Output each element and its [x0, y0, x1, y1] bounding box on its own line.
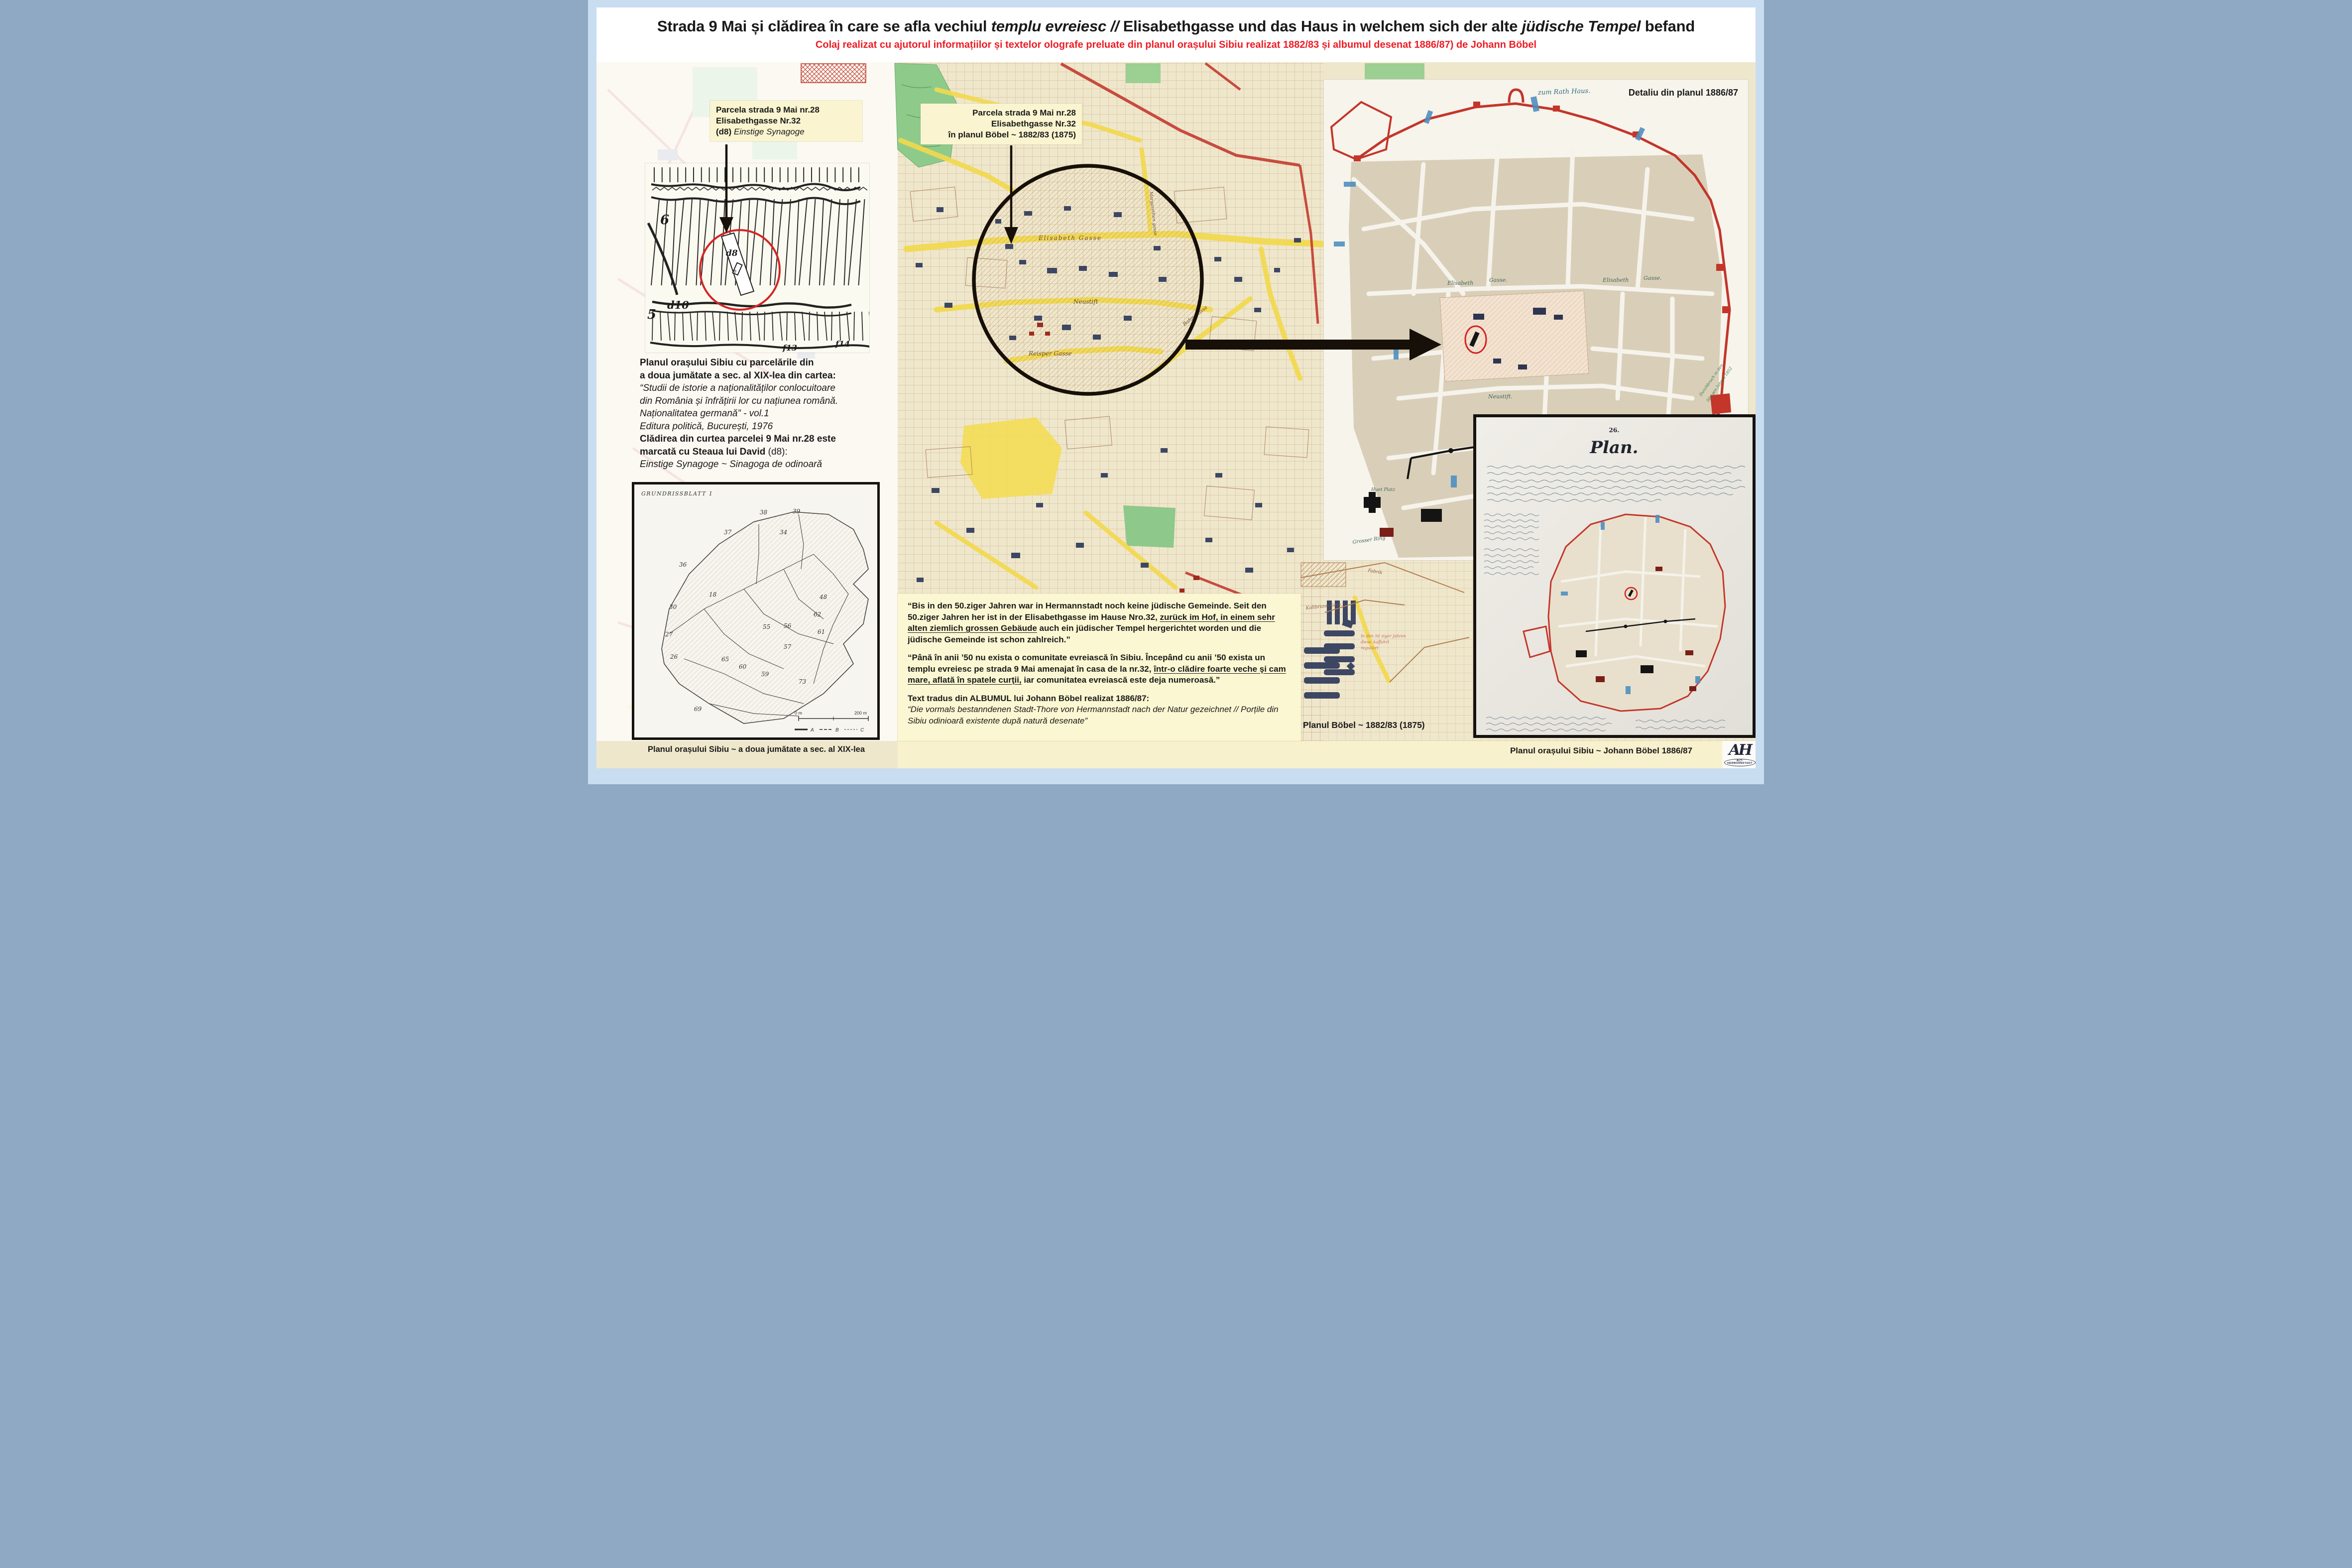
street-label-elisabeth: Elisabeth Gasse	[1038, 235, 1102, 241]
svg-text:60: 60	[739, 663, 747, 670]
quote-romanian: “Până în anii ’50 nu exista o comunitate…	[908, 652, 1291, 686]
quote-german: “Bis in den 50.ziger Jahren war in Herma…	[908, 601, 1291, 645]
ah-logo-text: ALT-HERMANNSTADT	[1724, 759, 1756, 766]
ah-monogram: AH	[1724, 743, 1755, 758]
svg-text:Gasse.: Gasse.	[1489, 277, 1508, 283]
svg-text:65: 65	[721, 656, 729, 663]
inset-cadastral-sketch: ✡ d8 6 d10 5 f13 f14	[645, 163, 869, 353]
svg-text:48: 48	[819, 594, 827, 601]
caption-detail-1886: Detaliu din planul 1886/87	[1579, 88, 1738, 98]
miniature-plan	[1524, 514, 1725, 711]
svg-text:18: 18	[709, 591, 717, 598]
footer-notes	[1486, 717, 1725, 731]
margin-notes	[1484, 514, 1539, 575]
panel-label-elisabeth-1: Elisabeth	[1447, 280, 1473, 286]
label-f14: f14	[835, 339, 850, 349]
svg-text:26: 26	[670, 653, 678, 660]
caption-bottom-right: Planul orașului Sibiu ~ Johann Böbel 188…	[1484, 746, 1718, 756]
note-red-1: In den 50 ziger Jahren	[1360, 634, 1406, 638]
callout-parcel-left: Parcela strada 9 Mai nr.28 Elisabethgass…	[710, 101, 862, 141]
note-red-2: diese Auffahrt	[1361, 640, 1390, 644]
label-d8: d8	[726, 248, 738, 258]
svg-text:36: 36	[679, 561, 687, 568]
street-label-neustift: Neustift	[1073, 298, 1098, 305]
red-hatched-area	[801, 64, 866, 83]
svg-text:61: 61	[818, 628, 825, 635]
grundriss-title: GRUNDRISSBLATT 1	[641, 490, 713, 497]
svg-text:57: 57	[784, 643, 792, 650]
svg-text:27: 27	[665, 631, 673, 638]
svg-text:30: 30	[669, 603, 677, 610]
svg-text:Gasse.: Gasse.	[1644, 275, 1662, 281]
panel-label-huet-platz: Huet Platz	[1371, 487, 1395, 492]
caption-bottom-left: Planul orașului Sibiu ~ a doua jumătate …	[632, 745, 881, 754]
panel-label-neustift: Neustift.	[1488, 393, 1513, 400]
scale-bar: 0 m 200 m A B C	[795, 711, 868, 733]
quote-box: “Bis in den 50.ziger Jahren war in Herma…	[898, 594, 1301, 741]
panel-label-elisabeth-2: Elisabeth	[1602, 277, 1629, 283]
svg-text:38: 38	[760, 509, 768, 516]
ah-logo: AH ALT-HERMANNSTADT	[1724, 743, 1755, 766]
plan-number: 26.	[1609, 427, 1620, 434]
handwriting-lines	[1487, 466, 1745, 501]
svg-text:55: 55	[763, 623, 770, 630]
inset-plan-document: 26. Plan.	[1473, 414, 1756, 738]
svg-text:200 m: 200 m	[854, 711, 867, 716]
inset-grundrissblatt: GRUNDRISSBLATT 1 38 39 37 36 34	[632, 482, 880, 740]
svg-text:56: 56	[784, 622, 792, 629]
callout-parcel-center: Parcela strada 9 Mai nr.28 Elisabethgass…	[921, 104, 1082, 144]
svg-text:39: 39	[793, 508, 801, 515]
svg-text:C: C	[860, 727, 864, 733]
plan-title: Plan.	[1589, 438, 1638, 458]
svg-text:69: 69	[694, 706, 702, 713]
svg-text:73: 73	[799, 678, 807, 685]
svg-text:37: 37	[724, 529, 732, 536]
svg-text:B: B	[835, 727, 839, 733]
svg-text:0 m: 0 m	[795, 711, 802, 716]
page-title: Strada 9 Mai și clădirea în care se afla…	[596, 17, 1756, 35]
caption-boebel-plan: Planul Böbel ~ 1882/83 (1875)	[1303, 720, 1462, 730]
label-f13: f13	[782, 343, 797, 353]
title-band: Strada 9 Mai și clădirea în care se afla…	[596, 7, 1756, 62]
poster: Elisabeth Gasse Neustift Reisper Gasse B…	[588, 0, 1764, 784]
star-of-david-icon: ✡	[733, 269, 737, 274]
label-6: 6	[660, 213, 669, 228]
svg-text:A: A	[810, 727, 814, 733]
page-subtitle: Colaj realizat cu ajutorul informațiilor…	[596, 39, 1756, 51]
label-5: 5	[647, 307, 656, 322]
note-red-3: reguliert	[1361, 646, 1379, 650]
svg-text:62: 62	[814, 611, 821, 618]
left-description: Planul orașului Sibiu cu parcelările din…	[640, 357, 899, 471]
svg-text:59: 59	[761, 671, 769, 678]
panel-label-grosser-ring: Grosser Ring	[1352, 535, 1386, 545]
svg-text:34: 34	[780, 529, 787, 536]
street-label-reisper: Reisper Gasse	[1028, 350, 1072, 357]
label-d10: d10	[667, 299, 689, 311]
cadastral-patch	[1440, 291, 1589, 381]
quote-album: Text tradus din ALBUMUL lui Johann Böbel…	[908, 693, 1291, 727]
